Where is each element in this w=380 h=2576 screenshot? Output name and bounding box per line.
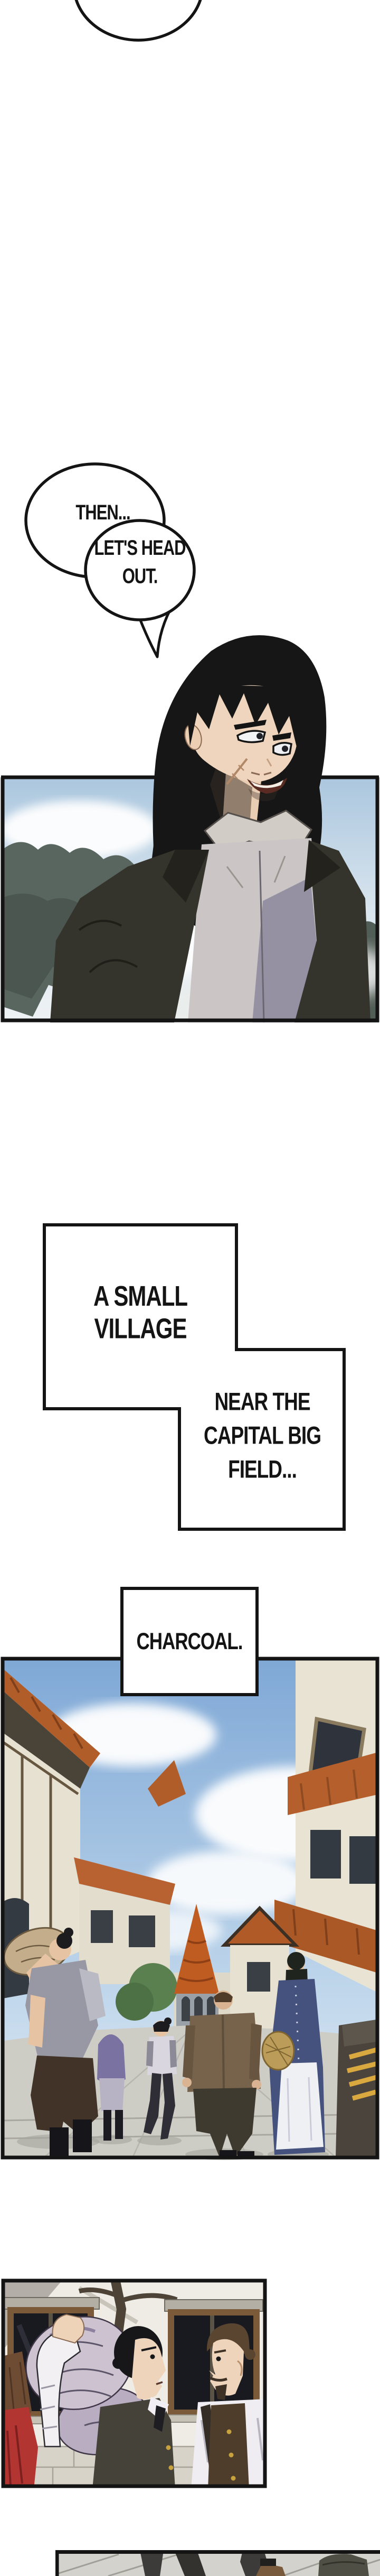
gold-button (166, 2445, 171, 2450)
panel-bottom-strip (55, 2547, 380, 2576)
bubble-outline (74, 0, 203, 40)
window (91, 1910, 113, 1943)
panel4-scene (55, 2550, 380, 2576)
caption-small-village-text: A SMALL VILLAGE (45, 1280, 235, 1345)
topknot (64, 1928, 73, 1937)
caption-charcoal-box: CHARCOAL. (120, 1587, 259, 1696)
villager-cloaked (336, 2019, 380, 2157)
window (349, 1836, 377, 1884)
window (129, 1915, 155, 1947)
caption-small-village: A SMALL VILLAGE (45, 1287, 235, 1338)
button (227, 2430, 232, 2434)
sleeve (169, 2040, 177, 2068)
apron (276, 2062, 324, 2150)
hair-tail (245, 2349, 255, 2360)
hair-top (287, 1952, 305, 1970)
hood-cape (97, 2034, 126, 2084)
gold-button (169, 2466, 174, 2470)
sock-cuff (260, 2559, 276, 2566)
boot (73, 2119, 92, 2152)
speech-text-lets-head-out: LET'S HEAD OUT. (79, 540, 201, 583)
caption-line: FIELD... (186, 1453, 339, 1486)
hair-tail (112, 2357, 124, 2369)
ponytail (164, 2017, 172, 2025)
skirt (99, 2078, 125, 2111)
window (310, 1830, 341, 1878)
caption-near-capital: NEAR THE CAPITAL BIG FIELD... (186, 1396, 339, 1475)
button (229, 2453, 234, 2458)
speech-bubble-top-partial (63, 0, 211, 50)
shadow (92, 2135, 132, 2144)
coat-seam (223, 2015, 224, 2089)
sleeve (146, 2041, 154, 2067)
comic-page: THEN... LET'S HEAD OUT. A SMALL VILLAGE … (0, 0, 380, 2576)
speech-line: OUT. (79, 562, 201, 590)
eye (216, 2357, 221, 2361)
village-scene (0, 1656, 380, 2160)
caption-charcoal-text: CHARCOAL. (123, 1628, 255, 1655)
hand (182, 2078, 192, 2087)
speech-line: LET'S HEAD (79, 534, 201, 562)
brown-vest (208, 2403, 249, 2489)
panel-two-men (0, 2272, 380, 2494)
iris-left (256, 733, 263, 739)
button (231, 2476, 236, 2481)
speech-text-then: THEN... (50, 503, 156, 522)
leg (115, 2110, 123, 2139)
eye (150, 2355, 155, 2359)
window (247, 1962, 270, 1992)
speech-text-then-line: THEN... (50, 500, 156, 525)
caption-boxes-union (32, 1210, 359, 1548)
boot (50, 2127, 69, 2157)
panel3-scene (0, 2279, 267, 2489)
iris-right (282, 746, 288, 752)
leg (103, 2110, 111, 2141)
caption-line: CAPITAL BIG (186, 1419, 339, 1453)
panel-village (0, 1656, 380, 2163)
shadow (137, 2136, 182, 2145)
caption-line: NEAR THE (186, 1385, 339, 1419)
tree (116, 1983, 154, 2021)
